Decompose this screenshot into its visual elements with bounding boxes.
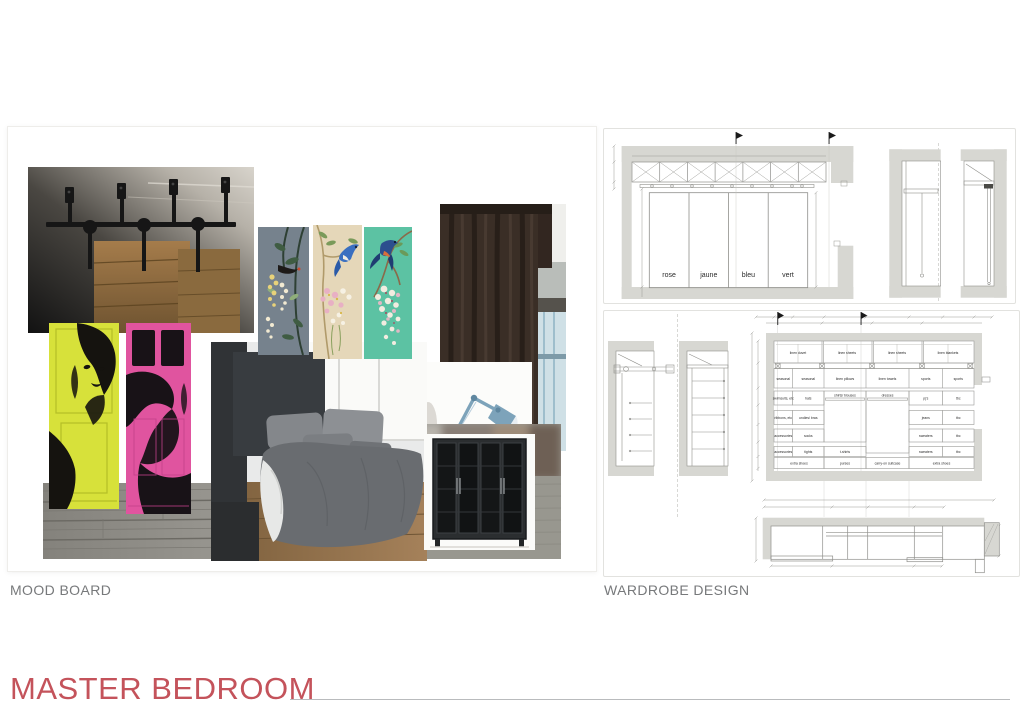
compartment-label: shirts/ blouses (834, 394, 856, 398)
wardrobe-internal-layout-panel: linen duvet linen sheets linen sheets li… (603, 310, 1020, 577)
compartment-label: tbc (956, 450, 961, 454)
compartment-label: accessories (774, 434, 792, 438)
compartment-label: sports (921, 377, 931, 381)
wardrobe-design-label: WARDROBE DESIGN (604, 582, 750, 598)
compartment-label: hats (805, 397, 812, 401)
compartment-label: sports (954, 377, 964, 381)
gray-bed-photo (211, 342, 427, 561)
presentation-page: rose jaune bleu vert (0, 0, 1024, 716)
door-label-vert: vert (782, 272, 794, 279)
floral-panel-cream-photo (313, 225, 362, 359)
compartment-label: seasonal (802, 377, 816, 381)
floral-panel-teal-photo (364, 227, 412, 359)
barn-door-hardware-photo (28, 167, 254, 333)
compartment-label: seasonal (777, 377, 791, 381)
compartment-label: linen pillows (836, 377, 855, 381)
compartment-label: tights (804, 450, 812, 454)
black-glass-cabinet-photo (424, 434, 535, 550)
compartment-label: linen blankets (938, 351, 959, 355)
compartment-label: linen sheets (888, 351, 906, 355)
mood-board-label: MOOD BOARD (10, 582, 111, 598)
floral-panel-slate-photo (258, 227, 309, 355)
compartment-label: purses (840, 462, 850, 466)
compartment-label: socks (804, 434, 813, 438)
compartment-label: dresses (882, 394, 894, 398)
wardrobe-internal-layout-drawing: linen duvet linen sheets linen sheets li… (604, 311, 1019, 576)
mood-board-panel (7, 126, 597, 572)
pop-art-pink-door-photo (126, 323, 191, 514)
compartment-label: linen duvet (790, 351, 806, 355)
pop-art-yellow-door-photo (49, 323, 119, 509)
compartment-label: linen towels (879, 377, 897, 381)
compartment-label: jeans (921, 416, 930, 420)
door-label-bleu: bleu (742, 272, 755, 279)
compartment-label: accessories (774, 450, 792, 454)
compartment-label: pj's (923, 397, 928, 401)
compartment-label: sweaters (919, 450, 933, 454)
title-underline (290, 699, 1010, 700)
compartment-label: t-shirts (840, 450, 850, 454)
wardrobe-elevation-panel: rose jaune bleu vert (603, 128, 1016, 304)
compartment-label: extra shoes (933, 462, 951, 466)
compartment-label: undies/ bras (799, 416, 818, 420)
compartment-label: sweaters (919, 434, 933, 438)
compartment-label: carry-on suitcase (875, 462, 901, 466)
compartment-label: linen sheets (838, 351, 856, 355)
compartment-label: swimsuits, etc (773, 397, 794, 401)
compartment-label: extra shoes (790, 462, 808, 466)
section-marker-icon (736, 132, 836, 144)
page-title: MASTER BEDROOM (10, 671, 315, 707)
compartment-label: tbc (956, 434, 961, 438)
door-label-jaune: jaune (699, 272, 717, 279)
compartment-label: ribbons, etc (775, 416, 793, 420)
wardrobe-elevation-drawing: rose jaune bleu vert (604, 129, 1015, 303)
compartment-label: tbc (956, 397, 961, 401)
door-label-rose: rose (662, 272, 676, 279)
compartment-label: tbc (956, 416, 961, 420)
